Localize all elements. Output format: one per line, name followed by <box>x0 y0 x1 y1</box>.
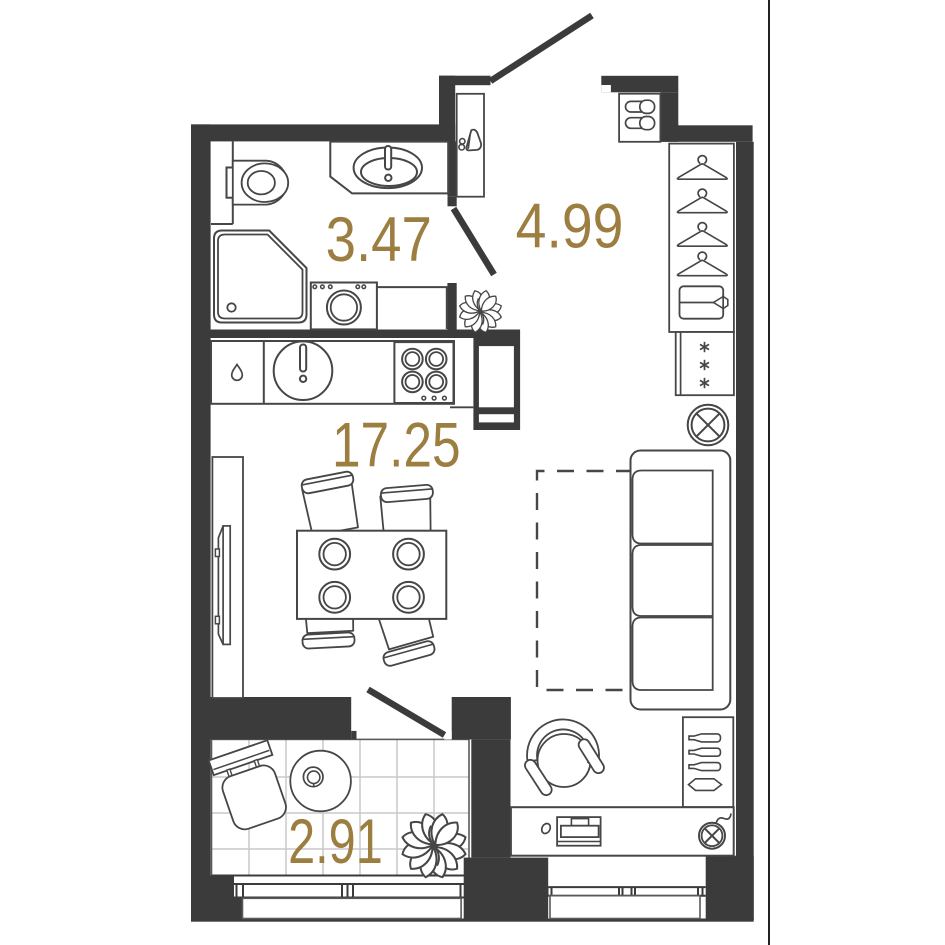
svg-text:4.99: 4.99 <box>516 192 624 262</box>
svg-text:2.91: 2.91 <box>288 807 383 877</box>
svg-text:17.25: 17.25 <box>332 411 461 481</box>
svg-text:3.47: 3.47 <box>326 205 432 275</box>
